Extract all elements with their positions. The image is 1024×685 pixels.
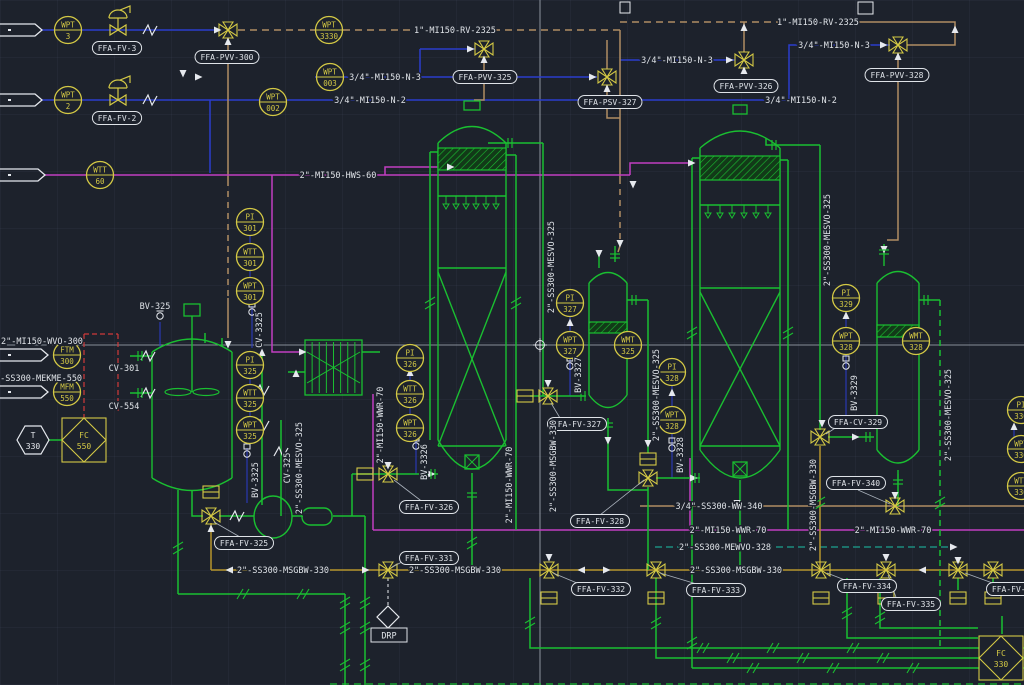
tag-label: FFA-FV-325 [215, 537, 274, 550]
svg-text:300: 300 [60, 357, 74, 366]
strainer-vessel [254, 496, 292, 538]
spray-nozzle [753, 213, 759, 218]
flow-arrow-icon [567, 319, 574, 327]
instrument-bubble: WPT3330 [316, 17, 343, 44]
pump [302, 508, 332, 525]
svg-text:WPT: WPT [665, 411, 679, 420]
svg-text:002: 002 [266, 104, 280, 113]
instrument-bubble: WMT325 [615, 332, 642, 359]
tag-label: FFA-PSV-327 [578, 96, 642, 109]
line-break-icon [143, 95, 157, 105]
flow-arrow-icon [726, 57, 734, 64]
svg-text:WPT: WPT [266, 93, 280, 102]
svg-text:329: 329 [839, 300, 853, 309]
line-label: 2"-SS300-MSGBW-330 [690, 566, 782, 576]
tag-label: FFA-FV-333 [687, 584, 746, 597]
svg-text:328: 328 [839, 343, 853, 352]
instrument-bubble: WTT301 [237, 244, 264, 271]
svg-text:330: 330 [1014, 412, 1024, 421]
svg-text:WPT: WPT [61, 21, 75, 30]
line-label: 2"-SS300-MESVO-325 [944, 369, 954, 461]
svg-text:PI: PI [245, 213, 254, 222]
svg-text:WPT: WPT [322, 21, 336, 30]
svg-text:330: 330 [994, 660, 1009, 669]
svg-text:FC: FC [79, 431, 89, 440]
vessel-outline [877, 272, 919, 284]
flow-arrow-icon [895, 53, 902, 61]
svg-text:301: 301 [243, 293, 257, 302]
svg-text:327: 327 [563, 347, 577, 356]
instrument-bubble: WPT328 [833, 328, 860, 355]
svg-text:327: 327 [563, 305, 577, 314]
svg-text:FFA-FV-333: FFA-FV-333 [692, 586, 740, 595]
instrument-bubble: WPT002 [260, 89, 287, 116]
flow-arrow-icon [214, 27, 222, 34]
svg-text:WPT: WPT [243, 282, 257, 291]
drain-label: DRP [371, 628, 407, 642]
tag-label: FFA-FV-331 [400, 552, 459, 565]
tag-label: FFA-FV-2 [92, 112, 141, 125]
pipe-continuation-flag [8, 354, 11, 356]
spray-nozzle [453, 204, 459, 209]
vessel-outline [733, 105, 747, 114]
flow-arrow-icon [603, 567, 611, 574]
svg-text:FC: FC [996, 649, 1006, 658]
pipe [385, 167, 446, 175]
instrument-bubble: WPT326 [397, 415, 424, 442]
svg-text:FFA-FV-3: FFA-FV-3 [98, 44, 137, 53]
instrument-bubble: PI330 [1008, 397, 1024, 424]
pipe [618, 246, 620, 252]
flow-arrow-icon [226, 567, 234, 574]
svg-text:FFA-FV-328: FFA-FV-328 [576, 517, 624, 526]
tag-label: FFA-FV-335 [882, 598, 941, 611]
tag-label: FFA-FV-334 [838, 580, 897, 593]
flow-arrow-icon [546, 554, 553, 562]
svg-text:WPT: WPT [839, 332, 853, 341]
instrument-bubble: WPT003 [317, 64, 344, 91]
pipe [192, 490, 203, 516]
svg-text:2: 2 [66, 102, 71, 111]
line-label: 2"-SS300-MSGBW-330 [549, 420, 559, 512]
control-valve-icon [639, 470, 657, 486]
svg-text:WPT: WPT [323, 68, 337, 77]
cad-viewport[interactable]: WPT3WPT2WTT60WPT3330WPT003WPT002PI301WTT… [0, 0, 1024, 685]
line-label: 1"-MI150-RV-2325 [414, 26, 496, 36]
tag-label: FFA-PVV-326 [714, 80, 778, 93]
instrument-bubble: WTT60 [87, 162, 114, 189]
spray-nozzle [741, 213, 747, 218]
vessel-outline [438, 127, 506, 144]
spray-nozzle [717, 213, 723, 218]
flow-arrow-icon [880, 42, 888, 49]
line-label: BV-3329 [850, 375, 860, 411]
svg-text:PI: PI [405, 349, 414, 358]
pipe [630, 163, 688, 175]
line-label: 2"-SS300-MESVO-325 [823, 194, 833, 286]
instrument-bubble: WPT327 [557, 332, 584, 359]
tag-label: FFA-CV-329 [829, 416, 888, 429]
pipe-continuation-flag [0, 169, 45, 181]
symbols-layer [0, 2, 1018, 673]
svg-text:FFA-FV-336: FFA-FV-336 [992, 585, 1024, 594]
instrument-bubble: PI325 [237, 352, 264, 379]
pipe [856, 22, 955, 45]
agitator-blade [193, 389, 219, 396]
flow-arrow-icon [208, 525, 215, 533]
tag-label: FFA-PVV-300 [195, 51, 259, 64]
block-valve-icon [157, 313, 163, 319]
vessel-outline [464, 101, 480, 110]
svg-text:FFA-FV-327: FFA-FV-327 [553, 420, 601, 429]
line-label: 2"-SS300-MEWVO-328 [679, 543, 771, 553]
line-label: 1"-MI150-RV-2325 [777, 18, 859, 28]
line-label: CV-3325 [255, 312, 265, 348]
tag-label: FFA-FV-336 [987, 583, 1024, 596]
spray-nozzle [443, 204, 449, 209]
svg-text:550: 550 [77, 442, 92, 451]
annotation-layer: WPT3WPT2WTT60WPT3330WPT003WPT002PI301WTT… [0, 17, 1024, 681]
line-label: 2"-MI150-WWR-70 [855, 526, 932, 536]
flow-arrow-icon [545, 380, 552, 388]
line-label: 2"-SS300-MESVO-325 [547, 221, 557, 313]
svg-text:WTT: WTT [403, 385, 417, 394]
line-label: BV-3327 [574, 357, 584, 393]
flow-arrow-icon [950, 544, 958, 551]
line-label: 2"-MI150-WVO-300 [1, 337, 83, 347]
flow-arrow-icon [630, 181, 637, 189]
packing-band [700, 156, 780, 180]
flow-arrow-icon [852, 434, 860, 441]
line-label: 3/4"-MI150-N-3 [798, 41, 870, 51]
relief-device [858, 2, 873, 14]
svg-text:325: 325 [243, 432, 257, 441]
flow-arrow-icon [843, 312, 850, 320]
svg-text:326: 326 [403, 396, 417, 405]
control-valve-icon [475, 41, 493, 57]
spray-nozzle [705, 213, 711, 218]
spray-nozzle [729, 213, 735, 218]
svg-text:FFA-FV-335: FFA-FV-335 [887, 600, 935, 609]
line-label: CV-325 [283, 453, 293, 484]
svg-text:60: 60 [95, 177, 105, 186]
svg-text:WMT: WMT [621, 336, 635, 345]
line-label: BV-3326 [420, 444, 430, 480]
line-break-icon [141, 388, 155, 398]
svg-text:DRP: DRP [381, 632, 396, 642]
leader-line [214, 522, 240, 537]
control-valve-icon [811, 429, 829, 445]
tag-label: FFA-FV-328 [571, 515, 630, 528]
pipe-continuation-flag [8, 99, 11, 101]
line-label: CV-554 [109, 402, 140, 412]
instrument-bubble: WTT330 [1008, 473, 1024, 500]
svg-text:550: 550 [60, 394, 74, 403]
leader-line [553, 573, 577, 583]
spray-nozzle [483, 204, 489, 209]
tag-label: FFA-PVV-325 [453, 71, 517, 84]
svg-text:PI: PI [245, 356, 254, 365]
svg-text:PI: PI [565, 294, 574, 303]
line-break-icon [141, 351, 155, 361]
instrument-bubble: WPT2 [55, 87, 82, 114]
pipe [608, 418, 648, 490]
drain-diamond-icon [377, 606, 399, 628]
packing-band [589, 322, 627, 333]
spray-nozzle [765, 213, 771, 218]
svg-text:FFA-PSV-327: FFA-PSV-327 [584, 98, 637, 107]
instrument-bubble: WTT325 [237, 385, 264, 412]
temperature-tag-hex: 330 [26, 442, 41, 451]
svg-text:328: 328 [665, 422, 679, 431]
vessel-outline [877, 450, 919, 463]
control-valve-icon [598, 69, 616, 85]
svg-text:328: 328 [665, 374, 679, 383]
svg-text:PI: PI [1016, 401, 1024, 410]
svg-text:FFA-FV-332: FFA-FV-332 [577, 585, 625, 594]
svg-text:FFA-FV-334: FFA-FV-334 [843, 582, 891, 591]
svg-text:FFA-FV-340: FFA-FV-340 [832, 479, 880, 488]
svg-text:WTT: WTT [93, 166, 107, 175]
svg-text:FFA-FV-326: FFA-FV-326 [405, 503, 453, 512]
line-label: 2"-MI150-WWR-70 [690, 526, 767, 536]
flow-arrow-icon [605, 437, 612, 445]
flow-arrow-icon [883, 554, 890, 562]
svg-text:WPT: WPT [1014, 440, 1024, 449]
vessel-outline [589, 395, 627, 408]
control-valve-icon [202, 508, 220, 524]
flow-arrow-icon [955, 557, 962, 565]
flow-arrow-icon [741, 24, 748, 32]
pipe-continuation-flag [8, 174, 11, 176]
line-label: 3/4"-MI150-N-2 [334, 96, 406, 106]
svg-text:325: 325 [621, 347, 635, 356]
svg-text:3: 3 [66, 32, 71, 41]
control-valve-icon [889, 37, 907, 53]
line-label: 2"-SS300-MSGBW-330 [237, 566, 329, 576]
leader-line [551, 403, 560, 418]
flow-arrow-icon [225, 38, 232, 46]
svg-text:WTT: WTT [243, 248, 257, 257]
flow-arrow-icon [293, 370, 300, 378]
flow-arrow-icon [669, 389, 676, 397]
svg-text:WPT: WPT [243, 421, 257, 430]
line-label: 2"-MI150-HWS-60 [300, 171, 377, 181]
instrument-bubble: WMT328 [903, 328, 930, 355]
line-label: 2"-SS300-MESVO-325 [652, 349, 662, 441]
flow-arrow-icon [578, 567, 586, 574]
relief-device [620, 2, 630, 13]
instrument-bubble: PI326 [397, 345, 424, 372]
svg-text:WPT: WPT [563, 336, 577, 345]
svg-text:WPT: WPT [61, 91, 75, 100]
svg-text:330: 330 [1014, 488, 1024, 497]
svg-text:325: 325 [243, 367, 257, 376]
instrument-bubble: WPT301 [237, 278, 264, 305]
svg-text:FFA-PVV-326: FFA-PVV-326 [720, 82, 773, 91]
instrument-bubble: WPT3 [55, 17, 82, 44]
vessel-outline [700, 450, 780, 478]
instrument-bubble: PI329 [833, 285, 860, 312]
vessel-outline [152, 478, 232, 491]
svg-text:328: 328 [909, 343, 923, 352]
line-label: BV-325 [140, 302, 171, 312]
vessel-outline [184, 304, 200, 316]
svg-text:WTT: WTT [1014, 477, 1024, 486]
svg-text:301: 301 [243, 224, 257, 233]
svg-text:FFA-FV-2: FFA-FV-2 [98, 114, 137, 123]
svg-text:FFA-CV-329: FFA-CV-329 [834, 418, 882, 427]
svg-text:325: 325 [243, 400, 257, 409]
control-valve-icon [219, 22, 237, 38]
flow-controller-tag: FC550 [62, 418, 106, 462]
agitator-blade [165, 389, 191, 396]
pipe-continuation-flag [0, 349, 48, 361]
svg-text:326: 326 [403, 430, 417, 439]
line-label: 3/4"-SS300-WW-340 [676, 502, 763, 512]
line-label: 2"-MI150-WWR-70 [505, 447, 515, 524]
tag-label: FFA-FV-340 [827, 477, 886, 490]
instrument-bubble: WPT325 [237, 417, 264, 444]
spray-nozzle [463, 204, 469, 209]
svg-text:WMT: WMT [909, 332, 923, 341]
line-label: CV-301 [109, 364, 140, 374]
line-break-icon [230, 511, 244, 521]
flow-arrow-icon [195, 74, 203, 81]
svg-text:FFA-PVV-328: FFA-PVV-328 [871, 71, 924, 80]
pipe-continuation-flag [8, 391, 11, 393]
svg-text:WTT: WTT [243, 389, 257, 398]
svg-text:PI: PI [667, 363, 676, 372]
line-label: 3/4"-MI150-N-3 [349, 73, 421, 83]
svg-text:WPT: WPT [403, 419, 417, 428]
line-label: 2"-SS300-MSGBW-330 [809, 459, 819, 551]
flow-arrow-icon [919, 567, 927, 574]
svg-text:FFA-FV-325: FFA-FV-325 [220, 539, 268, 548]
flow-controller-tag: FC330 [979, 636, 1023, 680]
instrument-bubble: PI301 [237, 209, 264, 236]
instrument-bubble: WPT330 [1008, 436, 1024, 463]
control-valve-icon [735, 52, 753, 68]
temperature-tag-hex: T [31, 431, 36, 440]
instrument-bubble: WPT328 [659, 407, 686, 434]
flow-arrow-icon [952, 26, 959, 34]
vessel-outline [589, 273, 627, 284]
leader-line [394, 480, 424, 503]
line-break-icon [143, 25, 157, 35]
line-label: 3/4"-MI150-N-3 [641, 56, 713, 66]
flow-arrow-icon [589, 74, 597, 81]
svg-text:FFA-PVV-300: FFA-PVV-300 [201, 53, 254, 62]
tag-label: FFA-FV-326 [400, 501, 459, 514]
pipe-continuation-flag [0, 94, 42, 106]
line-label: 3/4"-MI150-N-2 [765, 96, 837, 106]
leader-line [600, 480, 644, 515]
line-label: 2"-MI150-WWR-70 [376, 387, 386, 464]
tag-label: FFA-FV-3 [92, 42, 141, 55]
pipe [272, 175, 302, 352]
flow-arrow-icon [596, 250, 603, 258]
pipe-continuation-flag [8, 29, 11, 31]
line-label: 2"-SS300-MSGBW-330 [409, 566, 501, 576]
line-label: 2"-SS300-MESVO-325 [295, 422, 305, 514]
flow-arrow-icon [645, 440, 652, 448]
spray-nozzle [493, 204, 499, 209]
pipe-continuation-flag [0, 24, 42, 36]
svg-text:330: 330 [1014, 451, 1024, 460]
flow-arrow-icon [467, 46, 475, 53]
svg-text:003: 003 [323, 79, 337, 88]
line-label: BV-3328 [676, 437, 686, 473]
line-label: 2"-SS300-MEKME-550 [0, 374, 82, 384]
spray-nozzle [473, 204, 479, 209]
flow-arrow-icon [617, 240, 624, 248]
svg-text:3330: 3330 [320, 32, 339, 41]
equipment-layer [152, 101, 919, 538]
svg-text:FFA-PVV-325: FFA-PVV-325 [459, 73, 512, 82]
svg-text:PI: PI [841, 289, 850, 298]
tag-label: FFA-PVV-328 [865, 69, 929, 82]
flow-arrow-icon [1011, 423, 1018, 431]
instrument-bubble: WTT326 [397, 381, 424, 408]
flow-arrow-icon [180, 70, 187, 78]
svg-text:301: 301 [243, 259, 257, 268]
svg-text:FFA-FV-331: FFA-FV-331 [405, 554, 453, 563]
svg-text:326: 326 [403, 360, 417, 369]
instrument-bubble: PI328 [659, 359, 686, 386]
pid-drawing: WPT3WPT2WTT60WPT3330WPT003WPT002PI301WTT… [0, 0, 1024, 685]
instrument-bubble: PI327 [557, 290, 584, 317]
pipe-continuation-flag [0, 386, 48, 398]
flow-arrow-icon [604, 85, 611, 93]
flow-arrow-icon [690, 475, 698, 482]
leader-line [858, 490, 890, 504]
line-label: BV-3325 [251, 462, 261, 498]
tag-label: FFA-FV-332 [572, 583, 631, 596]
